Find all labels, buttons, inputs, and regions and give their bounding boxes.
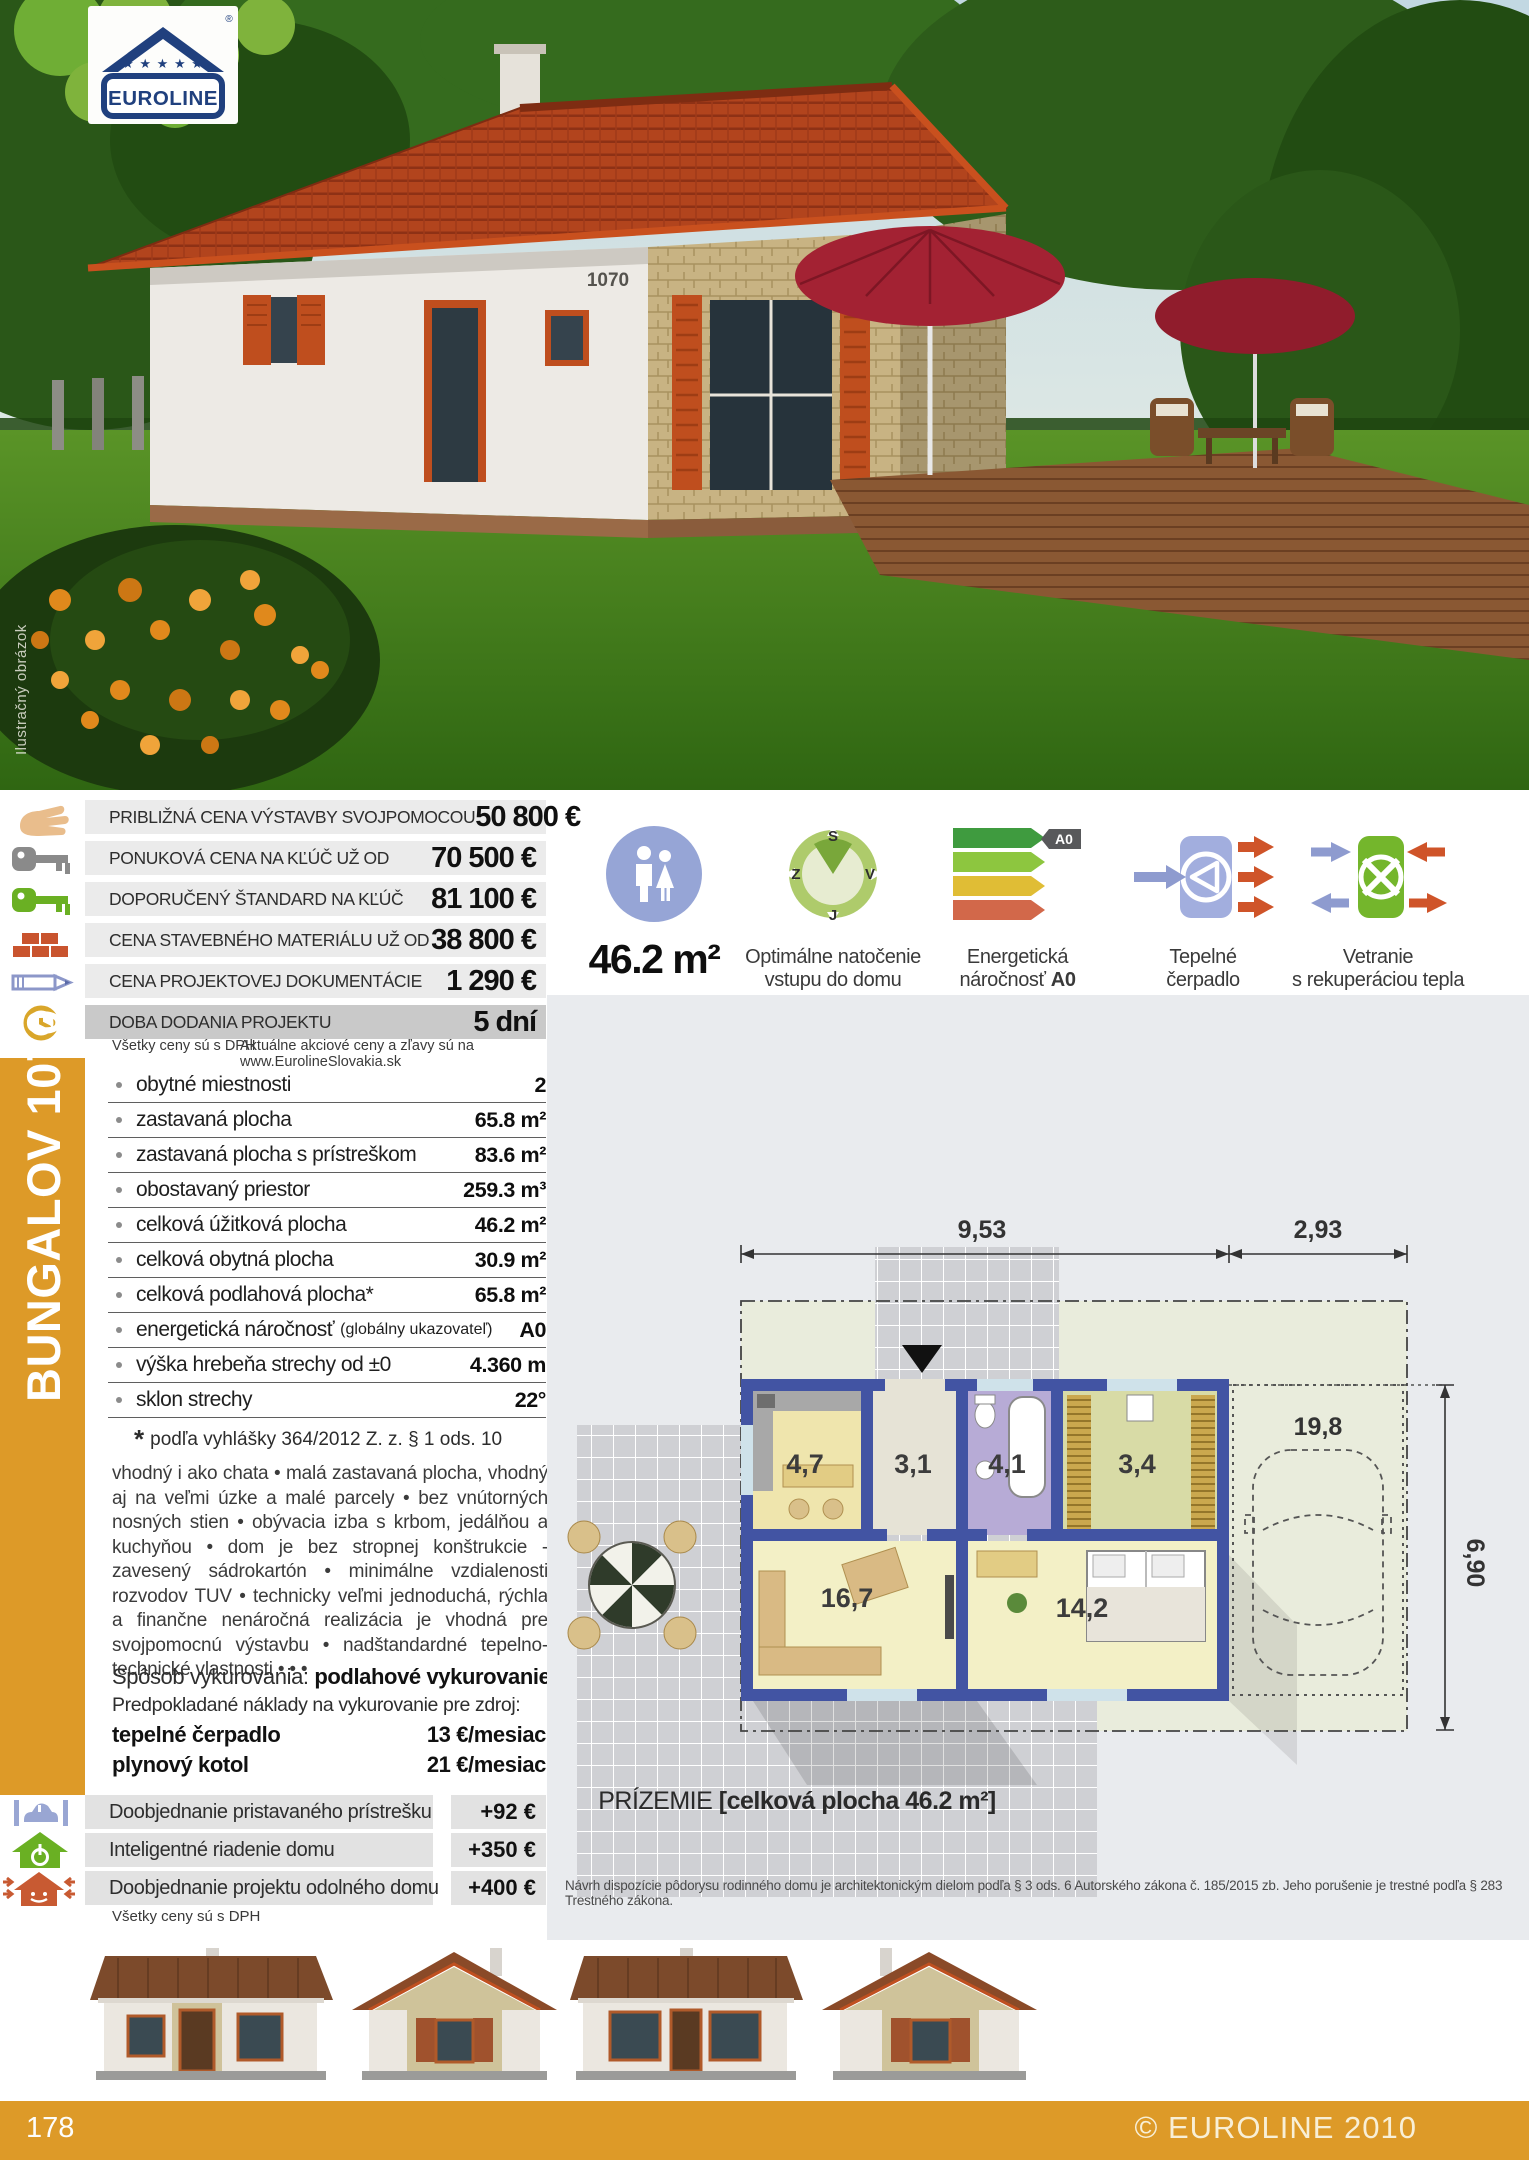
carport-area-label: 19,8 [1294, 1413, 1343, 1441]
spec-row: energetická náročnosť (globálny ukazovat… [108, 1313, 546, 1348]
dim-depth: 6,90 [1461, 1539, 1489, 1588]
spec-label: celková podlahová plocha* [136, 1283, 373, 1307]
addon-row: Doobjednanie projektu odolného domu +400… [85, 1871, 546, 1905]
spec-label: energetická náročnosť [136, 1318, 334, 1342]
price-value: 70 500 € [431, 842, 536, 875]
room-label-hall: 3,1 [894, 1449, 932, 1479]
dim-width-carport: 2,93 [1294, 1216, 1343, 1244]
spec-label: obostavaný priestor [136, 1178, 310, 1202]
price-row: CENA PROJEKTOVEJ DOKUMENTÁCIE 1 290 € [85, 964, 546, 998]
spec-row: obostavaný priestor 259.3 m³ [108, 1173, 546, 1208]
model-title: BUNGALOV 1070 [16, 1009, 71, 1402]
house-description: vhodný i ako chata • malá zastavaná ploc… [112, 1462, 548, 1683]
price-label: DOBA DODANIA PROJEKTU [109, 1012, 331, 1033]
bullet-icon [116, 1117, 122, 1123]
logo-registered: ® [225, 14, 233, 25]
shuttered-window [243, 295, 325, 365]
price-row: DOBA DODANIA PROJEKTU 5 dní [85, 1005, 546, 1039]
house-number: 1070 [587, 270, 629, 291]
price-label: PONUKOVÁ CENA NA KĽÚČ UŽ OD [109, 848, 389, 869]
bullet-icon [116, 1082, 122, 1088]
occupants-icon [606, 826, 702, 922]
addon-value: +400 € [451, 1871, 546, 1905]
spec-value: 4.360 m [470, 1353, 546, 1378]
bullet-icon [116, 1257, 122, 1263]
compass-icon: S Z V J [783, 824, 883, 924]
addon-row: Inteligentné riadenie domu +350 € [85, 1833, 546, 1867]
logo-brand: EUROLINE [108, 87, 218, 110]
bullet-icon [116, 1187, 122, 1193]
price-note: Všetky ceny sú s DPH Aktuálne akciové ce… [112, 1038, 552, 1054]
spec-value: 30.9 m² [475, 1248, 546, 1273]
price-value: 50 800 € [475, 801, 580, 834]
spec-value: 83.6 m² [475, 1143, 546, 1168]
heating-cost-row: tepelné čerpadlo 13 €/mesiac [112, 1722, 546, 1748]
room-label-living: 16,7 [821, 1583, 874, 1613]
resilient-house-icon [2, 1868, 76, 1908]
spec-value: 46.2 m² [475, 1213, 546, 1238]
bullet-icon [116, 1152, 122, 1158]
standard-key-icon [8, 880, 74, 920]
ventilation-icon [1303, 830, 1453, 925]
addons-vat-note: Všetky ceny sú s DPH [112, 1908, 260, 1925]
addon-label: Doobjednanie projektu odolného domu [85, 1871, 433, 1905]
bricks-icon [8, 921, 74, 961]
floorplan-caption: PRÍZEMIE [celková plocha 46.2 m²] [547, 1787, 1047, 1816]
energy-label-icon: A0 [953, 828, 1081, 923]
addon-row: Doobjednanie pristavaného prístrešku +92… [85, 1795, 546, 1829]
spec-label: obytné miestnosti [136, 1073, 291, 1097]
room-label-storage: 3,4 [1118, 1449, 1156, 1479]
spec-label: výška hrebeňa strechy od ±0 [136, 1353, 391, 1377]
addon-label: Doobjednanie pristavaného prístrešku [85, 1795, 433, 1829]
heat-pump-caption: Tepelné čerpadlo [1128, 946, 1278, 992]
compass-south-label: J [829, 907, 837, 924]
spec-label: zastavaná plocha s prístreškom [136, 1143, 416, 1167]
spec-label: celková úžitková plocha [136, 1213, 346, 1237]
spec-label: zastavaná plocha [136, 1108, 291, 1132]
page-number: 178 [26, 2112, 74, 2145]
logo-stars: ★ ★ ★ ★ ★ [122, 56, 204, 71]
spec-row: celková úžitková plocha 46.2 m² [108, 1208, 546, 1243]
addon-value: +92 € [451, 1795, 546, 1829]
front-wall [150, 247, 648, 520]
elevation-rear [568, 1948, 803, 2084]
website-note: Aktuálne akciové ceny a zľavy sú na www.… [240, 1038, 552, 1070]
spec-label: celková obytná plocha [136, 1248, 333, 1272]
price-label: PRIBLIŽNÁ CENA VÝSTAVBY SVOJPOMOCOU [109, 807, 475, 828]
self-build-hand-icon [8, 798, 74, 838]
price-value: 1 290 € [446, 965, 536, 998]
spec-row: celková obytná plocha 30.9 m² [108, 1243, 546, 1278]
euroline-logo: ★ ★ ★ ★ ★ EUROLINE ® [88, 6, 238, 124]
price-label: CENA STAVEBNÉHO MATERIÁLU UŽ OD [109, 930, 429, 951]
compass-north-label: S [828, 828, 838, 845]
dim-width-main: 9,53 [958, 1216, 1007, 1244]
energy-caption: Energetická náročnosť A0 [925, 946, 1110, 992]
price-value: 38 800 € [431, 924, 536, 957]
usable-area-value: 46.2 m² [556, 936, 752, 983]
compass-caption: Optimálne natočenie vstupu do domu [733, 946, 933, 992]
spec-value: 65.8 m² [475, 1283, 546, 1308]
heat-pump-icon [1128, 832, 1278, 922]
smart-home-icon [10, 1830, 70, 1870]
copyright-legal-text: Návrh dispozície pôdorysu rodinného domu… [565, 1878, 1515, 1908]
bullet-icon [116, 1292, 122, 1298]
bullet-icon [116, 1327, 122, 1333]
price-row: CENA STAVEBNÉHO MATERIÁLU UŽ OD 38 800 € [85, 923, 546, 957]
heating-costs-intro: Predpokladané náklady na vykurovanie pre… [112, 1694, 548, 1717]
spec-label: sklon strechy [136, 1388, 252, 1412]
elevation-side-gable [352, 1948, 557, 2084]
heating-method: Spôsob vykurovania: podlahové vykurovani… [112, 1664, 550, 1690]
price-value: 5 dní [473, 1006, 536, 1039]
photo-watermark: Ilustračný obrázok [13, 624, 30, 755]
spec-row: výška hrebeňa strechy od ±0 4.360 m [108, 1348, 546, 1383]
spec-value: 22° [515, 1388, 546, 1413]
price-row: PONUKOVÁ CENA NA KĽÚČ UŽ OD 70 500 € [85, 841, 546, 875]
spec-row: zastavaná plocha s prístreškom 83.6 m² [108, 1138, 546, 1173]
walkway [875, 1247, 1059, 1385]
spec-value: 259.3 m³ [463, 1178, 546, 1203]
spec-footnote: *podľa vyhlášky 364/2012 Z. z. § 1 ods. … [134, 1424, 502, 1455]
patio-doors [672, 292, 870, 490]
heating-cost-row: plynový kotol 21 €/mesiac [112, 1752, 546, 1778]
bullet-icon [116, 1222, 122, 1228]
addon-label: Inteligentné riadenie domu [85, 1833, 433, 1867]
footer-copyright: © EUROLINE 2010 [1134, 2110, 1417, 2146]
elevation-side-gable-2 [822, 1948, 1037, 2084]
room-label-bath: 4,1 [988, 1449, 1026, 1479]
vat-note: Všetky ceny sú s DPH [112, 1038, 255, 1054]
spec-row: celková podlahová plocha* 65.8 m² [108, 1278, 546, 1313]
pencil-icon [8, 962, 74, 1002]
price-label: DOPORUČENÝ ŠTANDARD NA KĽÚČ [109, 889, 403, 910]
compass-east-label: V [865, 866, 875, 883]
spec-value: 65.8 m² [475, 1108, 546, 1133]
spec-value: 2 [534, 1073, 546, 1098]
price-row: PRIBLIŽNÁ CENA VÝSTAVBY SVOJPOMOCOU 50 8… [85, 800, 546, 834]
carport-icon [8, 1794, 74, 1830]
addon-value: +350 € [451, 1833, 546, 1867]
elevation-front [88, 1948, 333, 2084]
compass-west-label: Z [791, 866, 800, 883]
room-label-bedroom: 14,2 [1056, 1593, 1109, 1623]
ventilation-caption: Vetranie s rekuperáciou tepla [1268, 946, 1488, 992]
spec-row: zastavaná plocha 65.8 m² [108, 1103, 546, 1138]
turnkey-key-icon [8, 839, 74, 879]
energy-badge: A0 [1055, 831, 1073, 847]
bullet-icon [116, 1362, 122, 1368]
spec-value: A0 [519, 1318, 546, 1343]
price-value: 81 100 € [431, 883, 536, 916]
spec-row: obytné miestnosti 2 [108, 1068, 546, 1103]
spec-row: sklon strechy 22° [108, 1383, 546, 1418]
price-row: DOPORUČENÝ ŠTANDARD NA KĽÚČ 81 100 € [85, 882, 546, 916]
front-door [424, 300, 486, 482]
room-label-kitchen: 4,7 [786, 1449, 824, 1479]
price-label: CENA PROJEKTOVEJ DOKUMENTÁCIE [109, 971, 422, 992]
bullet-icon [116, 1397, 122, 1403]
